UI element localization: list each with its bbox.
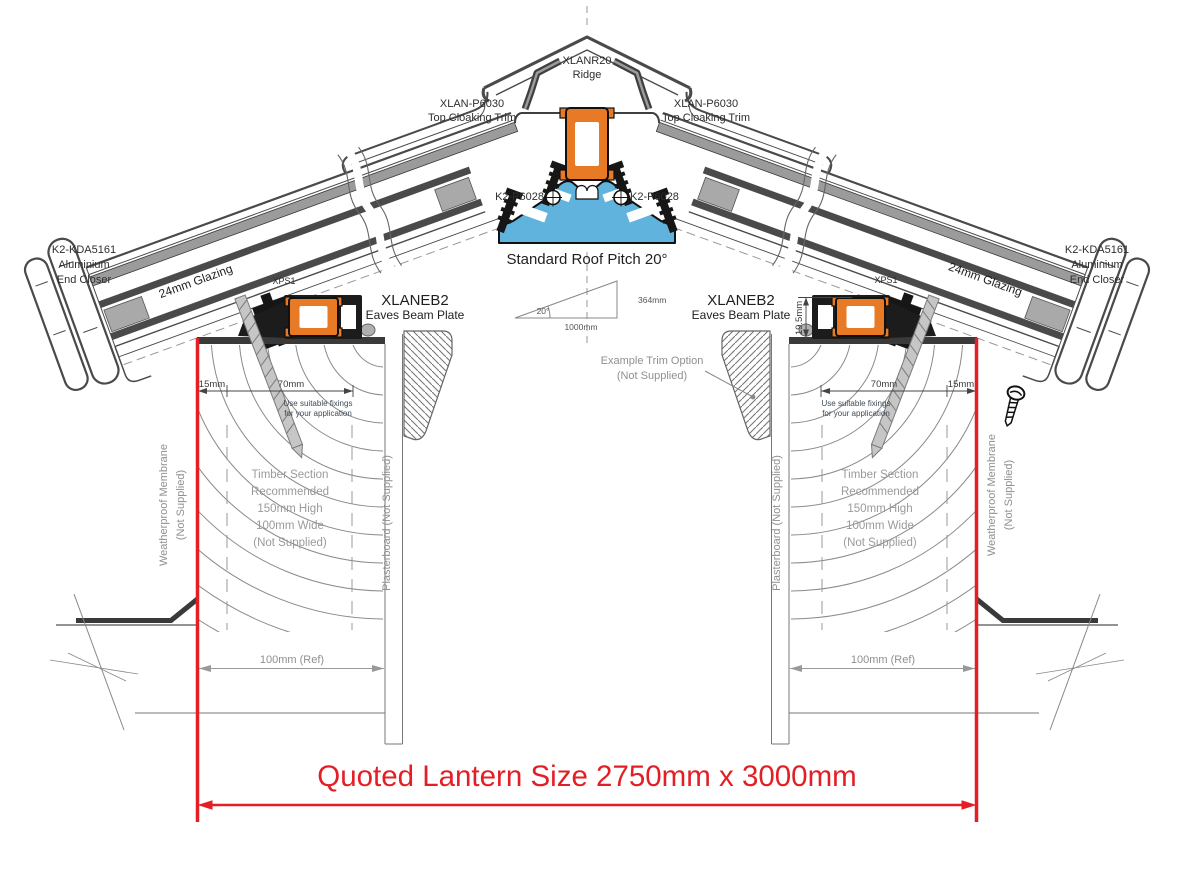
loose-screw-icon	[999, 385, 1026, 429]
cloaking-trim-left-label: XLAN-P6030	[440, 98, 504, 110]
membrane-left-label-2: (Not Supplied)	[175, 470, 187, 540]
timber-note-right-2: Recommended	[841, 486, 919, 498]
trim-option-label: Example Trim Option	[601, 355, 704, 367]
fixings-note-left-2: for your application	[284, 409, 352, 418]
fixings-note-right-2: for your application	[822, 409, 890, 418]
fixings-note-left: Use suitable fixings	[284, 399, 353, 408]
quoted-size-dimension	[198, 800, 977, 810]
end-closer-left-label-2: Aluminium	[58, 259, 109, 271]
left-side-assembly	[19, 0, 727, 822]
membrane-left-label: Weatherproof Membrane	[158, 444, 170, 566]
pitch-rise-label: 364mm	[638, 295, 666, 305]
dim-70-left: 70mm	[278, 379, 304, 390]
end-closer-left-label: K2-KDA5161	[52, 244, 116, 256]
ref-left-label: 100mm (Ref)	[260, 654, 324, 666]
drawing-svg: XLANR20 Ridge XLAN-P6030 Top Cloaking Tr…	[0, 0, 1184, 872]
end-closer-right-label: K2-KDA5161	[1065, 244, 1129, 256]
upstand-dim-label: 19.5mm	[794, 301, 805, 335]
lantern-cross-section-drawing: XLANR20 Ridge XLAN-P6030 Top Cloaking Tr…	[0, 0, 1184, 872]
end-closer-right-label-3: End Closer	[1070, 274, 1125, 286]
timber-note-left: Timber Section	[252, 469, 329, 481]
eaves-left-label: XLANEB2	[381, 292, 449, 309]
cloaking-trim-left-label-2: Top Cloaking Trim	[428, 112, 516, 124]
end-closer-left-label-3: End Closer	[57, 274, 112, 286]
membrane-right-label-2: (Not Supplied)	[1003, 460, 1015, 530]
cloaking-trim-right-label-2: Top Cloaking Trim	[662, 112, 750, 124]
k2-p6028-left-label: K2-P6028	[495, 191, 544, 203]
timber-note-right-4: 100mm Wide	[846, 520, 914, 532]
dim-70-right: 70mm	[871, 379, 897, 390]
ridge-label-2: Ridge	[573, 69, 602, 81]
pitch-base-label: 1000mm	[564, 322, 597, 332]
eaves-right-label: XLANEB2	[707, 292, 775, 309]
timber-note-left-5: (Not Supplied)	[253, 537, 327, 549]
dim-15-right: 15mm	[948, 379, 974, 390]
k2-p6028-right-label: K2-P6028	[630, 191, 679, 203]
eaves-left-label-2: Eaves Beam Plate	[366, 308, 465, 322]
timber-note-right: Timber Section	[842, 469, 919, 481]
membrane-right-label: Weatherproof Membrane	[986, 434, 998, 556]
eaves-right-label-2: Eaves Beam Plate	[692, 308, 791, 322]
timber-note-left-2: Recommended	[251, 486, 329, 498]
quoted-size-label: Quoted Lantern Size 2750mm x 3000mm	[317, 760, 856, 793]
pitch-title: Standard Roof Pitch 20°	[506, 251, 667, 268]
timber-note-right-3: 150mm High	[847, 503, 912, 515]
right-side-assembly	[447, 0, 1155, 822]
ridge-label: XLANR20	[563, 55, 612, 67]
pitch-angle-label: 20°	[537, 306, 550, 316]
timber-note-left-4: 100mm Wide	[256, 520, 324, 532]
trim-option-label-2: (Not Supplied)	[617, 370, 687, 382]
xps1-left-label: XPS1	[272, 276, 295, 286]
plasterboard-right-label: Plasterboard (Not Supplied)	[771, 455, 783, 591]
cloaking-trim-right-label: XLAN-P6030	[674, 98, 738, 110]
pitch-triangle	[515, 281, 617, 318]
dim-15-left: 15mm	[199, 379, 225, 390]
timber-note-left-3: 150mm High	[257, 503, 322, 515]
timber-note-right-5: (Not Supplied)	[843, 537, 917, 549]
plasterboard-left-label: Plasterboard (Not Supplied)	[381, 455, 393, 591]
ridge-thermal-profile	[560, 108, 614, 180]
end-closer-right-label-2: Aluminium	[1071, 259, 1122, 271]
ref-right-label: 100mm (Ref)	[851, 654, 915, 666]
xps1-right-label: XPS1	[874, 275, 897, 285]
fixings-note-right: Use suitable fixings	[822, 399, 891, 408]
